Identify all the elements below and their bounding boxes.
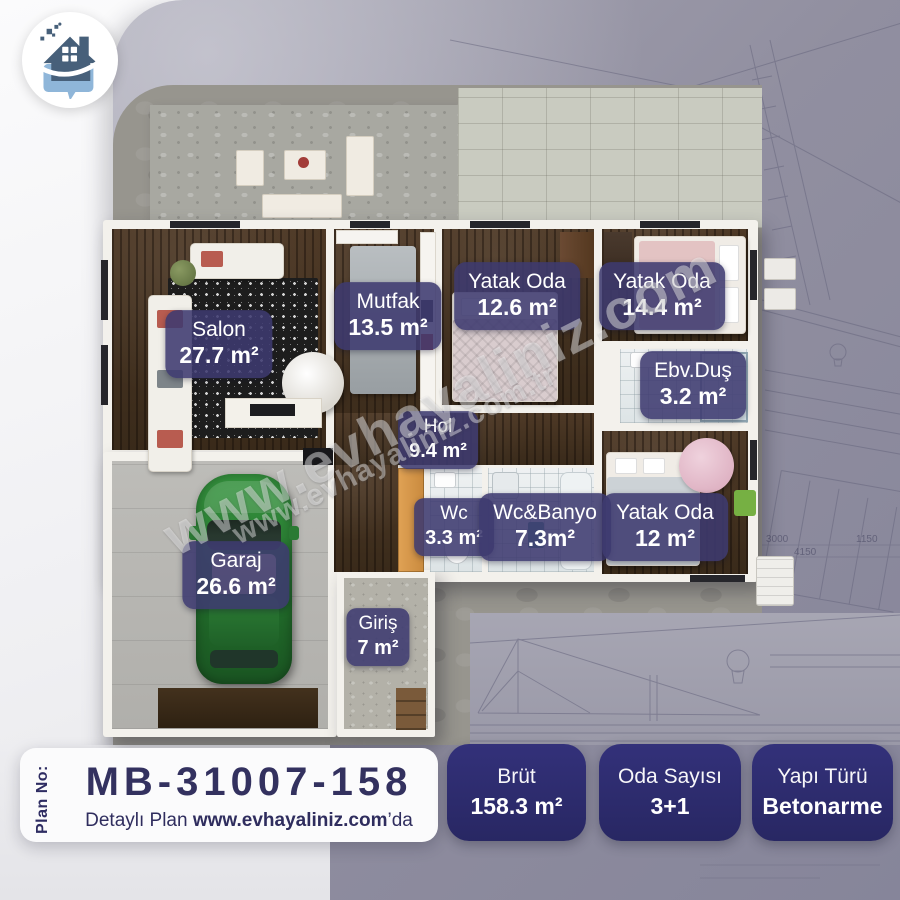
room-name: Wc (440, 503, 467, 526)
room-name: Yatak Oda (468, 269, 566, 294)
window-top-4 (640, 221, 700, 228)
detail-prefix: Detaylı Plan (85, 810, 193, 831)
entry-steps (396, 688, 426, 730)
window-top-3 (470, 221, 530, 228)
room-area: 7 m² (357, 636, 398, 660)
room-name: Yatak Oda (613, 269, 711, 294)
exterior-boiler (756, 556, 794, 606)
room-label-hol: Hol 9.4 m² (398, 411, 478, 469)
room-area: 14.4 m² (622, 294, 701, 322)
room-label-garaj: Garaj 26.6 m² (182, 541, 289, 609)
car-mirror (289, 526, 299, 540)
stat-value: Betonarme (762, 793, 882, 820)
window-top-1 (170, 221, 240, 228)
window-left-1 (101, 260, 108, 320)
room-area: 12.6 m² (477, 294, 556, 322)
window-right-2 (750, 440, 757, 480)
stat-badge-yapi-turu: Yapı Türü Betonarme (752, 744, 893, 841)
window-bottom-1 (690, 575, 745, 582)
room-label-mutfak: Mutfak 13.5 m² (334, 282, 441, 350)
room-area: 9.4 m² (409, 439, 467, 463)
stat-label: Yapı Türü (777, 765, 867, 789)
ac-unit-1 (764, 258, 796, 280)
salon-plant (170, 260, 196, 286)
plan-no-label: Plan No: (34, 756, 52, 834)
terrace-sofa (262, 194, 342, 218)
car-rear-window (210, 650, 278, 668)
room-area: 3.2 m² (660, 383, 726, 411)
room-area: 13.5 m² (348, 314, 427, 342)
fireplace-unit (303, 448, 333, 465)
kitchen-upper-counter (336, 230, 398, 244)
room-label-yatak-oda-3: Yatak Oda 12 m² (602, 493, 728, 561)
car-hood (204, 481, 284, 513)
blueprint-elevation-panel (470, 613, 900, 745)
room-name: Ebv.Duş (654, 358, 732, 383)
room-area: 7.3m² (515, 525, 575, 553)
plan-info-panel: Plan No: MB-31007-158 Detaylı Plan www.e… (20, 748, 438, 842)
room-name: Garaj (210, 548, 261, 573)
wc-sink (434, 472, 456, 488)
room-label-giris: Giriş 7 m² (346, 608, 409, 666)
salon-daybed (190, 243, 284, 279)
room-area: 27.7 m² (179, 342, 258, 370)
terrace-lounger (346, 136, 374, 196)
window-right-1 (750, 250, 757, 300)
window-left-2 (101, 345, 108, 405)
room-label-yatak-oda-1: Yatak Oda 12.6 m² (454, 262, 580, 330)
stat-label: Oda Sayısı (618, 765, 722, 789)
house-chat-icon (31, 21, 109, 99)
plan-detail-line: Detaylı Plan www.evhayaliniz.com’da (68, 810, 430, 832)
window-top-2 (350, 221, 390, 228)
truss-sketch (470, 613, 900, 745)
room-name: Salon (192, 317, 246, 342)
sofa-pillow (201, 251, 223, 267)
detail-site-url: www.evhayaliniz.com (193, 810, 388, 831)
room-name: Mutfak (356, 289, 419, 314)
terrace-flowers (298, 157, 309, 168)
terrace (150, 105, 460, 228)
room-area: 12 m² (635, 525, 695, 553)
car-mirror (189, 526, 199, 540)
stat-badge-brut: Brüt 158.3 m² (447, 744, 586, 841)
brand-logo (22, 12, 118, 108)
stat-value: 158.3 m² (470, 793, 562, 820)
garden-stone-wall (458, 88, 762, 228)
room-label-yatak-oda-2: Yatak Oda 14.4 m² (599, 262, 725, 330)
garage-mat (158, 688, 318, 728)
plan-number: MB-31007-158 (68, 760, 430, 805)
detail-suffix: ’da (388, 810, 413, 831)
room-name: Wc&Banyo (493, 500, 597, 525)
tv-screen (250, 404, 295, 416)
kids-toy (734, 490, 756, 516)
ac-unit-2 (764, 288, 796, 310)
room-label-salon: Salon 27.7 m² (165, 310, 272, 378)
bed-pillow (615, 458, 637, 474)
stat-label: Brüt (497, 765, 536, 789)
room-name: Yatak Oda (616, 500, 714, 525)
kids-armchair (679, 438, 734, 493)
room-area: 26.6 m² (196, 573, 275, 601)
terrace-chair (236, 150, 264, 186)
room-label-ebv-dus: Ebv.Duş 3.2 m² (640, 351, 746, 419)
room-name: Giriş (358, 613, 397, 636)
corridor-floor (334, 465, 398, 572)
sofa-pillow (157, 430, 183, 448)
room-label-wc-banyo: Wc&Banyo 7.3m² (479, 493, 611, 561)
stat-value: 3+1 (650, 793, 689, 820)
bed-pillow (643, 458, 665, 474)
bed-blanket (453, 319, 557, 401)
room-area: 3.3 m² (425, 526, 483, 550)
room-name: Hol (424, 416, 453, 439)
real-estate-floor-plan-image: { "logo": {"icon": "house-chat-icon"}, "… (0, 0, 900, 900)
stat-badge-oda-sayisi: Oda Sayısı 3+1 (599, 744, 741, 841)
